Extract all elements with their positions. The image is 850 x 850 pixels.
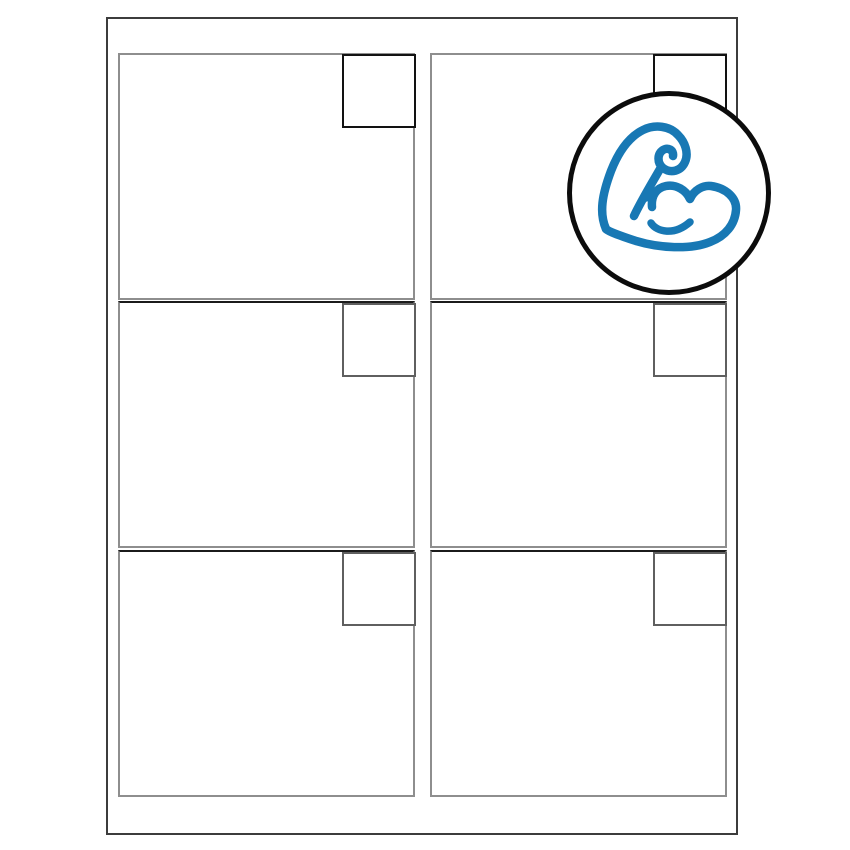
corner-tab-r3c1	[342, 552, 416, 626]
strength-badge	[567, 91, 771, 295]
bicep-smile-accent-stroke	[651, 222, 690, 231]
corner-tab-r2c2	[653, 303, 727, 377]
bicep-arm-outline-stroke	[602, 127, 686, 229]
corner-tab-r1c1	[342, 54, 416, 128]
bicep-muscle-stroke	[606, 186, 736, 248]
flexed-bicep-icon	[572, 96, 766, 290]
corner-tab-r3c2	[653, 552, 727, 626]
canvas: { "colors": { "background": "#ffffff", "…	[0, 0, 850, 850]
corner-tab-r2c1	[342, 303, 416, 377]
